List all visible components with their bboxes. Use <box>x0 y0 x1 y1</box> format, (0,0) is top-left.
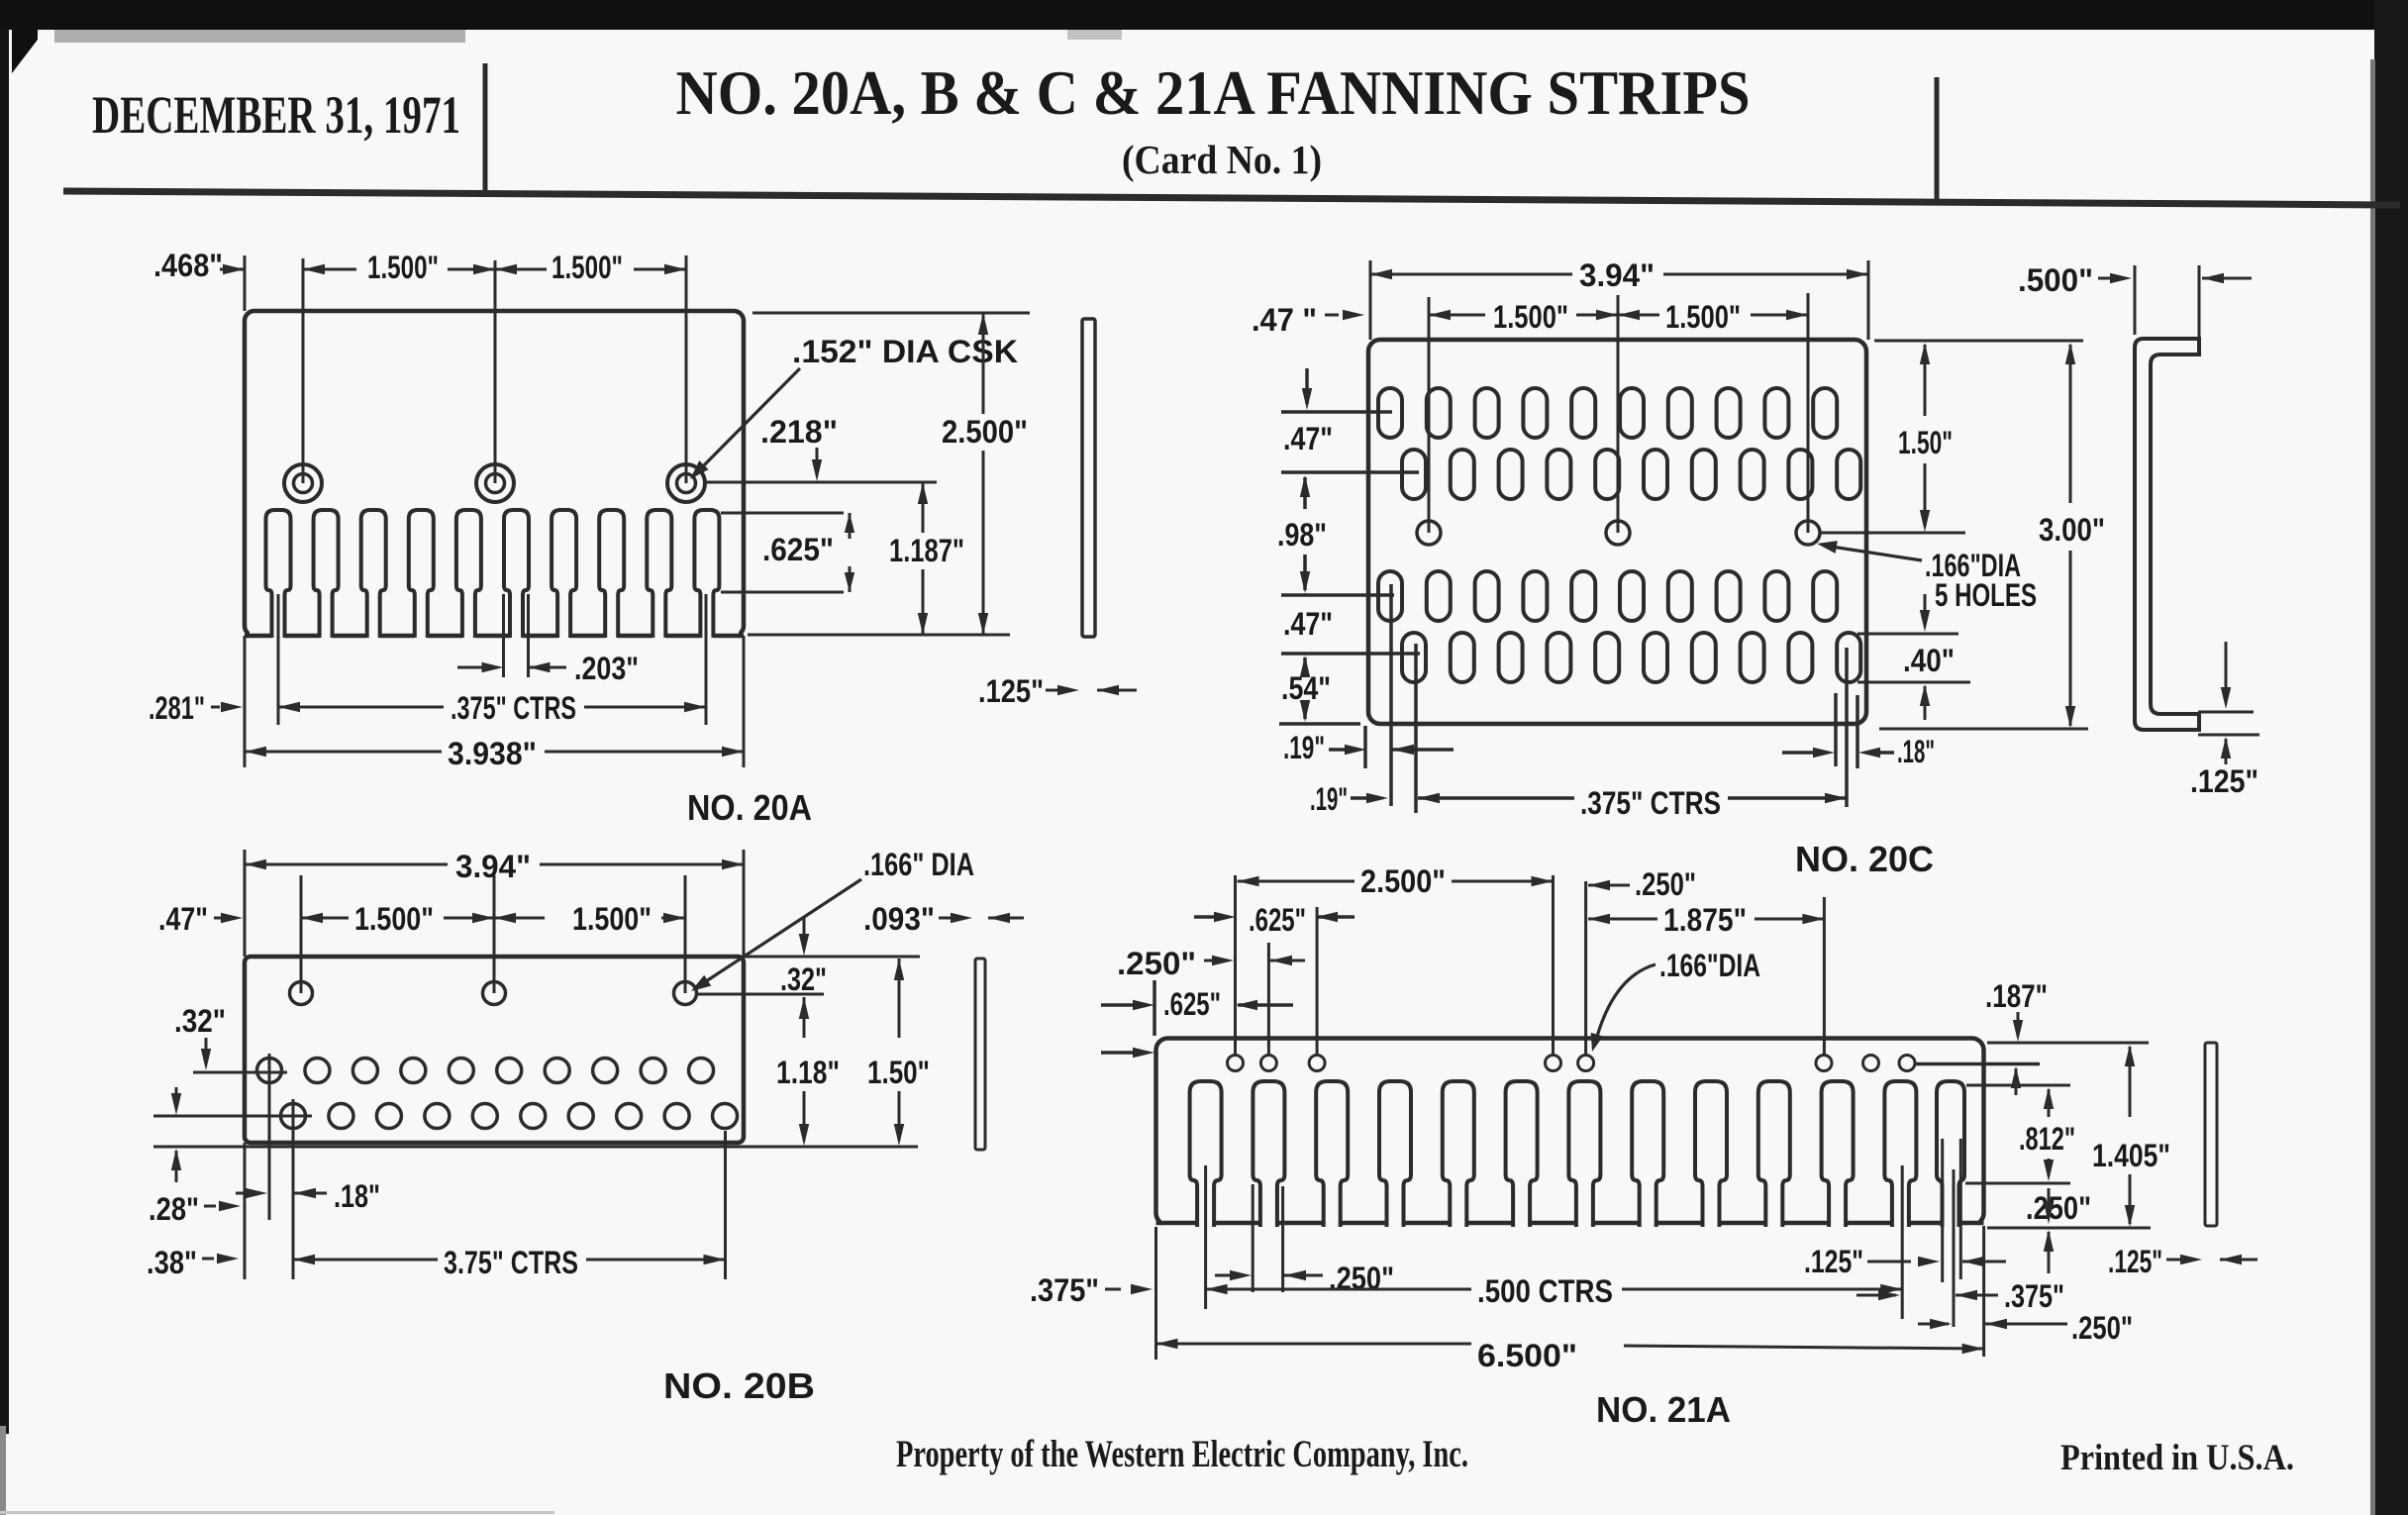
svg-text:.125": .125" <box>1804 1244 1863 1279</box>
svg-text:DECEMBER 31, 1971: DECEMBER 31, 1971 <box>92 85 460 145</box>
svg-text:.19": .19" <box>1283 730 1325 765</box>
svg-text:1.18": 1.18" <box>776 1055 840 1090</box>
svg-text:.375" CTRS: .375" CTRS <box>1580 785 1721 821</box>
svg-text:.812": .812" <box>2019 1121 2075 1157</box>
svg-text:.500 CTRS: .500 CTRS <box>1477 1273 1613 1309</box>
svg-text:.625": .625" <box>762 532 834 567</box>
svg-text:1.50": 1.50" <box>1898 425 1953 460</box>
svg-text:1.500": 1.500" <box>367 250 439 285</box>
svg-text:.125": .125" <box>2190 763 2258 799</box>
svg-text:.40": .40" <box>1903 643 1955 678</box>
svg-text:.203": .203" <box>574 651 639 686</box>
svg-text:.468": .468" <box>153 248 223 283</box>
svg-text:2.500": 2.500" <box>1360 863 1446 899</box>
svg-text:.625": .625" <box>1249 902 1306 938</box>
svg-text:.32": .32" <box>174 1003 226 1039</box>
svg-text:.47": .47" <box>158 901 208 937</box>
svg-text:.375": .375" <box>2004 1278 2064 1314</box>
svg-text:.281": .281" <box>149 690 205 726</box>
svg-text:2.500": 2.500" <box>942 414 1028 450</box>
svg-text:.375" CTRS: .375" CTRS <box>451 690 576 726</box>
svg-text:.250": .250" <box>1117 946 1196 981</box>
svg-text:3.75" CTRS: 3.75" CTRS <box>444 1245 578 1280</box>
svg-text:3.94": 3.94" <box>1579 257 1655 293</box>
svg-text:1.50": 1.50" <box>867 1055 930 1090</box>
svg-text:NO. 20B: NO. 20B <box>663 1365 815 1406</box>
svg-text:.47": .47" <box>1283 606 1333 642</box>
svg-text:.125": .125" <box>2108 1244 2162 1279</box>
svg-text:1.500": 1.500" <box>572 901 652 937</box>
svg-text:.18": .18" <box>334 1178 380 1214</box>
svg-text:NO. 21A: NO. 21A <box>1596 1389 1731 1430</box>
svg-text:3.00": 3.00" <box>2039 512 2105 548</box>
svg-text:1.187": 1.187" <box>889 533 964 568</box>
svg-text:.250": .250" <box>2071 1310 2133 1346</box>
svg-text:.093": .093" <box>863 901 935 937</box>
svg-text:.38": .38" <box>147 1245 197 1280</box>
svg-text:1.875": 1.875" <box>1663 902 1747 938</box>
svg-text:.375": .375" <box>1030 1272 1099 1308</box>
svg-text:5 HOLES: 5 HOLES <box>1935 577 2037 613</box>
svg-text:.250": .250" <box>1635 866 1696 902</box>
svg-text:.218": .218" <box>760 414 838 450</box>
svg-text:.166" DIA: .166" DIA <box>863 847 974 882</box>
svg-text:NO. 20A: NO. 20A <box>687 787 812 828</box>
svg-text:.166"DIA: .166"DIA <box>1659 948 1760 983</box>
svg-text:.18": .18" <box>1897 734 1935 769</box>
svg-text:.250": .250" <box>1329 1261 1394 1296</box>
svg-text:.187": .187" <box>1985 978 2048 1014</box>
svg-text:6.500": 6.500" <box>1477 1338 1577 1373</box>
svg-text:1.405": 1.405" <box>2092 1138 2170 1173</box>
svg-text:.47": .47" <box>1283 421 1333 456</box>
svg-text:.250": .250" <box>2026 1190 2091 1226</box>
svg-text:3.94": 3.94" <box>455 849 531 884</box>
svg-text:.98": .98" <box>1277 517 1327 553</box>
svg-text:.32": .32" <box>780 961 827 997</box>
svg-text:.125": .125" <box>978 673 1044 709</box>
svg-text:.47 ": .47 " <box>1252 302 1317 338</box>
svg-text:1.500": 1.500" <box>552 250 623 285</box>
svg-text:.19": .19" <box>1310 781 1348 817</box>
svg-text:1.500": 1.500" <box>354 901 434 937</box>
svg-text:.28": .28" <box>149 1191 199 1227</box>
svg-text:1.500": 1.500" <box>1665 299 1741 335</box>
svg-text:Printed in U.S.A.: Printed in U.S.A. <box>2060 1438 2294 1478</box>
svg-text:1.500": 1.500" <box>1493 299 1568 335</box>
svg-text:Property of the Western Electr: Property of the Western Electric Company… <box>896 1433 1468 1475</box>
svg-text:3.938": 3.938" <box>448 736 537 771</box>
svg-text:NO. 20A, B & C & 21A FANNING S: NO. 20A, B & C & 21A FANNING STRIPS <box>676 58 1751 128</box>
svg-text:(Card No. 1): (Card No. 1) <box>1122 137 1322 182</box>
svg-text:NO. 20C: NO. 20C <box>1795 839 1934 879</box>
svg-text:.625": .625" <box>1163 986 1221 1022</box>
svg-text:.500": .500" <box>2018 262 2093 298</box>
